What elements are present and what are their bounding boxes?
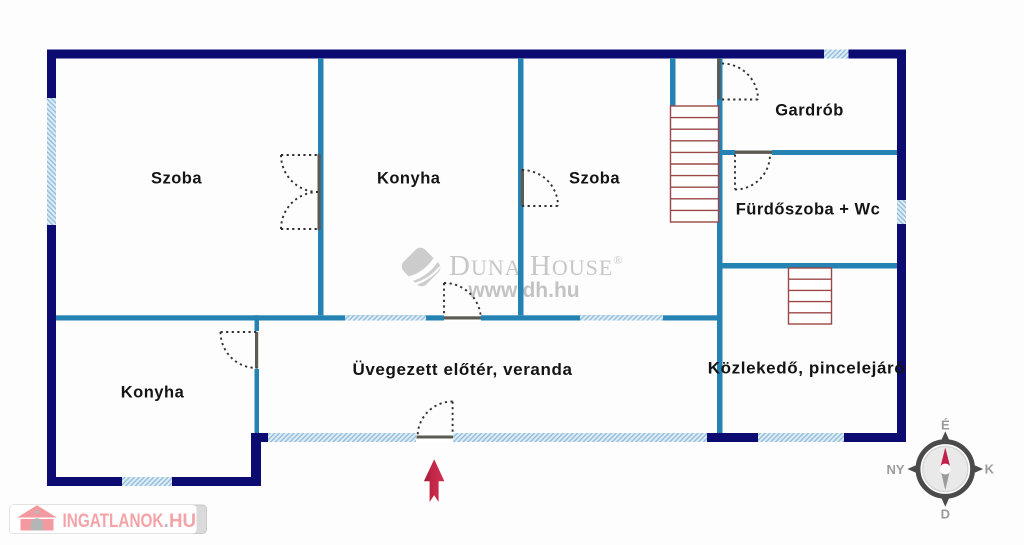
- svg-text:Szoba: Szoba: [569, 170, 620, 188]
- svg-text:É: É: [941, 418, 950, 433]
- svg-text:K: K: [985, 462, 995, 477]
- svg-text:Gardrób: Gardrób: [775, 102, 844, 120]
- svg-text:Fürdőszoba + Wc: Fürdőszoba + Wc: [736, 201, 881, 219]
- svg-text:Konyha: Konyha: [121, 384, 185, 402]
- svg-text:NY: NY: [886, 462, 904, 477]
- svg-text:Szoba: Szoba: [151, 170, 202, 188]
- svg-text:D: D: [941, 507, 950, 522]
- svg-text:DUNA HOUSE®: DUNA HOUSE®: [449, 250, 623, 282]
- svg-text:HU: HU: [169, 511, 196, 532]
- svg-text:INGATLANOK: INGATLANOK: [63, 511, 164, 532]
- svg-text:.: .: [164, 511, 169, 532]
- svg-text:Konyha: Konyha: [377, 170, 441, 188]
- svg-text:Közlekedő, pincelejáró: Közlekedő, pincelejáró: [708, 359, 905, 378]
- svg-text:Üvegezett előtér, veranda: Üvegezett előtér, veranda: [352, 360, 572, 379]
